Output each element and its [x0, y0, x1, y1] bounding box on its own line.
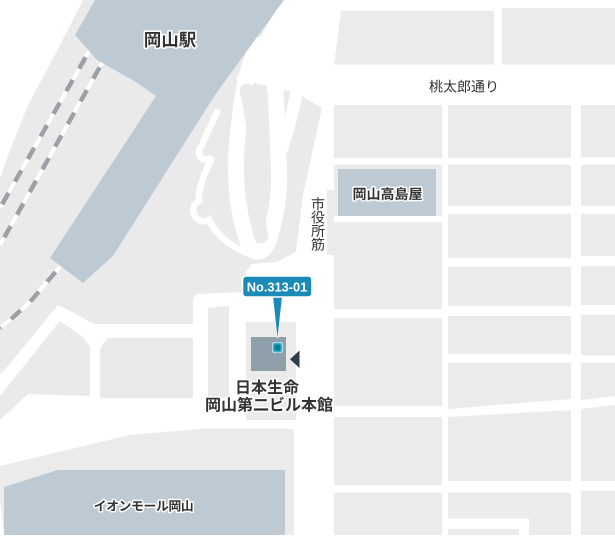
svg-text:No.313-01: No.313-01 [247, 280, 307, 295]
